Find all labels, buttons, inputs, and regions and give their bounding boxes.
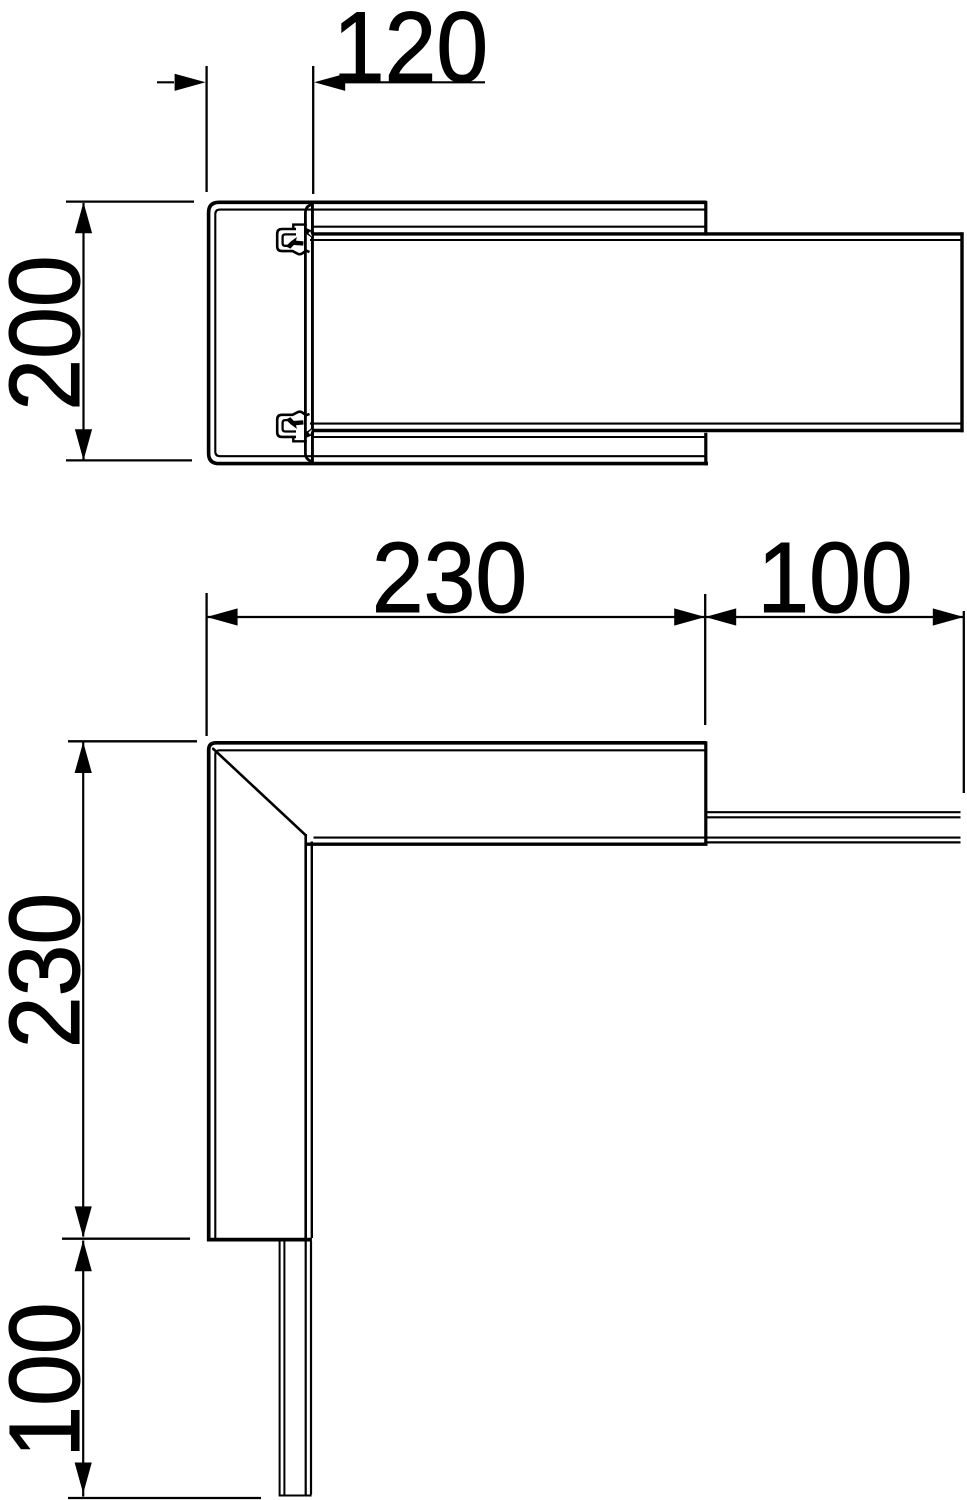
svg-text:200: 200 <box>0 255 101 410</box>
svg-text:100: 100 <box>0 1302 101 1457</box>
svg-text:230: 230 <box>372 523 527 634</box>
svg-text:230: 230 <box>0 893 101 1048</box>
svg-text:120: 120 <box>333 0 488 103</box>
svg-text:100: 100 <box>757 523 912 634</box>
